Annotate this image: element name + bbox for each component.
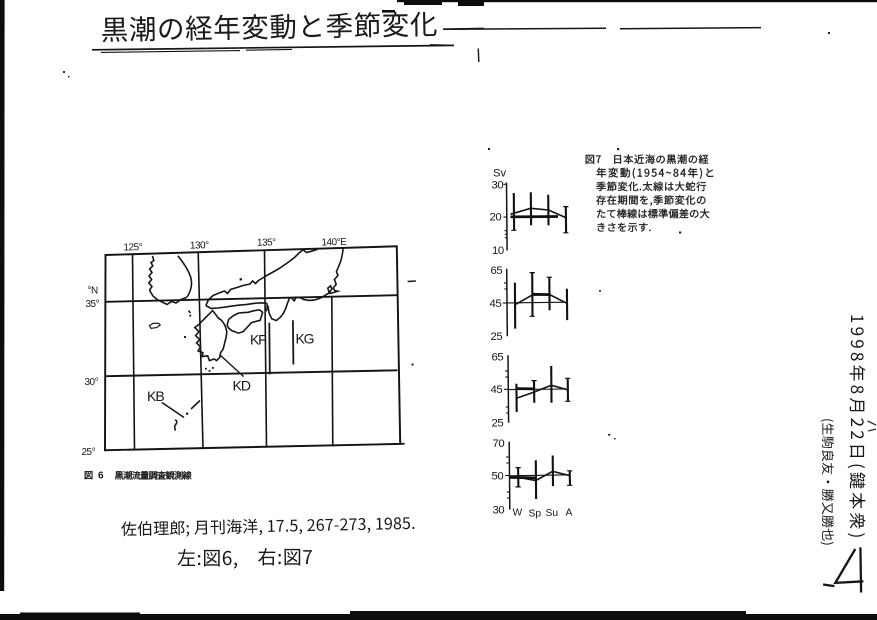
svg-text:10: 10	[492, 245, 504, 257]
svg-text:65: 65	[492, 351, 504, 363]
svg-text:Sp: Sp	[529, 509, 542, 520]
svg-text:65: 65	[491, 265, 503, 277]
svg-text:135°: 135°	[257, 237, 276, 248]
svg-text:KG: KG	[296, 331, 314, 347]
svg-text:A: A	[566, 508, 573, 519]
svg-text:45: 45	[490, 298, 502, 310]
svg-text:°N: °N	[88, 286, 98, 297]
svg-text:125°: 125°	[123, 242, 142, 253]
svg-text:30: 30	[493, 504, 505, 516]
svg-text:45: 45	[491, 384, 503, 396]
svg-text:KB: KB	[147, 388, 164, 404]
svg-text:30°: 30°	[85, 377, 99, 388]
svg-text:Sv: Sv	[493, 168, 507, 180]
svg-text:KF: KF	[250, 332, 266, 348]
svg-text:35°: 35°	[86, 299, 100, 310]
svg-text:20: 20	[490, 212, 502, 224]
svg-text:70: 70	[493, 438, 505, 450]
svg-text:Su: Su	[546, 508, 559, 519]
svg-text:25°: 25°	[82, 447, 96, 458]
svg-text:25: 25	[492, 418, 504, 430]
svg-text:30: 30	[492, 180, 504, 192]
svg-text:W: W	[513, 508, 523, 519]
svg-text:KD: KD	[233, 378, 251, 394]
svg-text:140°E: 140°E	[321, 237, 347, 249]
svg-text:50: 50	[492, 471, 504, 483]
svg-text:25: 25	[491, 331, 503, 343]
svg-text:6: 6	[98, 471, 104, 482]
svg-text:130°: 130°	[190, 240, 209, 251]
